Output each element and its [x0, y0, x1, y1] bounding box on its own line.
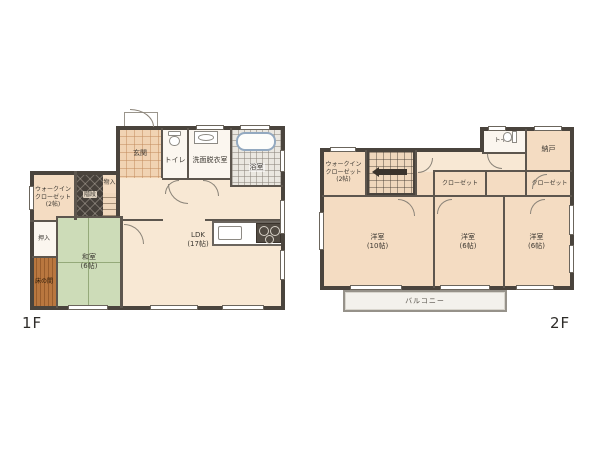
wall-segment	[74, 171, 77, 220]
toilet-bowl-icon	[169, 136, 180, 146]
window-marker	[440, 285, 490, 290]
room-closet-1: クローゼット	[435, 172, 485, 195]
window-marker	[240, 125, 270, 130]
toilet-bowl-icon	[503, 132, 512, 142]
bathtub-icon	[236, 132, 276, 151]
room-bathroom-label: 浴室	[249, 163, 265, 172]
room-nando-label: 納戸	[542, 145, 556, 154]
room-bedroom-2-label: 洋室 (6帖)	[460, 233, 477, 251]
room-washroom-label: 洗面脱衣室	[193, 156, 228, 165]
room-nando: 納戸	[527, 129, 570, 170]
room-genkan: 玄関	[118, 128, 162, 178]
room-oshiire-label: 押入	[38, 235, 50, 243]
wall-segment	[322, 195, 433, 197]
room-tokonoma: 床の間	[32, 258, 56, 306]
stairs-1f-label: 階段	[83, 191, 97, 199]
room-monoire: 物入	[103, 173, 116, 193]
floor-1-label: 1F	[22, 314, 42, 332]
window-marker	[150, 305, 198, 310]
wall-segment	[433, 170, 435, 288]
room-oshiire: 押入	[32, 222, 56, 256]
room-bedroom-1: 洋室 (10帖)	[322, 197, 433, 286]
wall-segment	[162, 178, 232, 180]
room-walkin-closet-2f-label: ウォークイン クローゼット (2帖)	[325, 161, 361, 184]
wall-segment	[56, 216, 58, 308]
wall-segment	[30, 220, 58, 222]
wall-segment	[525, 129, 527, 197]
room-toilet-1f-label: トイレ	[165, 156, 186, 165]
window-marker	[280, 250, 285, 280]
stairs-arrow-icon	[372, 167, 379, 177]
window-marker	[516, 285, 554, 290]
wall-segment	[205, 219, 283, 221]
balcony-label: バルコニー	[405, 297, 445, 306]
wall-segment	[187, 128, 189, 178]
window-marker	[196, 125, 224, 130]
window-marker	[534, 126, 562, 131]
wall-segment	[433, 170, 572, 172]
stairs-arrow-bar	[379, 169, 407, 175]
window-marker	[350, 285, 402, 290]
stairs-1f-treads	[103, 193, 116, 216]
room-walkin-closet-2f: ウォークイン クローゼット (2帖)	[322, 150, 365, 195]
room-walkin-closet-1f: ウォークイン クローゼット (2帖)	[32, 175, 74, 220]
toilet-icon	[512, 131, 517, 143]
stove-icon	[256, 223, 281, 243]
wall-segment	[116, 126, 120, 218]
room-genkan-label: 玄関	[133, 149, 147, 158]
window-marker	[222, 305, 264, 310]
room-closet-1-label: クローゼット	[442, 180, 478, 188]
floorplan-canvas: 玄関 トイレ 洗面脱衣室 浴室 ウォークイン クローゼット (2帖) 階段 物入…	[0, 0, 600, 450]
window-marker	[488, 126, 506, 131]
room-tokonoma-label: 床の間	[35, 278, 53, 286]
room-monoire-label: 物入	[103, 179, 115, 187]
window-marker	[29, 186, 34, 210]
wall-segment	[56, 216, 122, 218]
wall-segment	[232, 185, 283, 187]
wall-segment	[365, 150, 367, 195]
wall-segment	[32, 256, 56, 258]
wall-segment	[123, 219, 163, 221]
floor-2-label: 2F	[550, 314, 570, 332]
window-marker	[68, 305, 108, 310]
room-washitsu: 和室 (6帖)	[58, 218, 120, 306]
stairs-1f: 階段	[77, 173, 103, 216]
stove-burner-icon	[265, 235, 274, 244]
window-marker	[569, 205, 574, 235]
washstand-basin-icon	[198, 134, 214, 141]
wall-segment	[120, 216, 123, 308]
room-bedroom-3-label: 洋室 (6帖)	[528, 233, 545, 251]
wall-segment	[415, 150, 417, 195]
window-marker	[280, 150, 285, 172]
balcony: バルコニー	[343, 290, 507, 312]
window-marker	[330, 147, 356, 152]
window-marker	[569, 245, 574, 273]
window-marker	[280, 200, 285, 234]
wall-segment	[485, 170, 487, 197]
window-marker	[319, 212, 324, 250]
wall-segment	[503, 197, 505, 288]
kitchen-sink-icon	[218, 226, 242, 240]
wall-segment	[161, 128, 163, 178]
room-ldk-label: LDK (17帖)	[187, 231, 208, 249]
room-bedroom-1-label: 洋室 (10帖)	[367, 233, 388, 251]
room-washitsu-label: 和室 (6帖)	[81, 253, 98, 271]
room-walkin-closet-1f-label: ウォークイン クローゼット (2帖)	[35, 186, 71, 209]
